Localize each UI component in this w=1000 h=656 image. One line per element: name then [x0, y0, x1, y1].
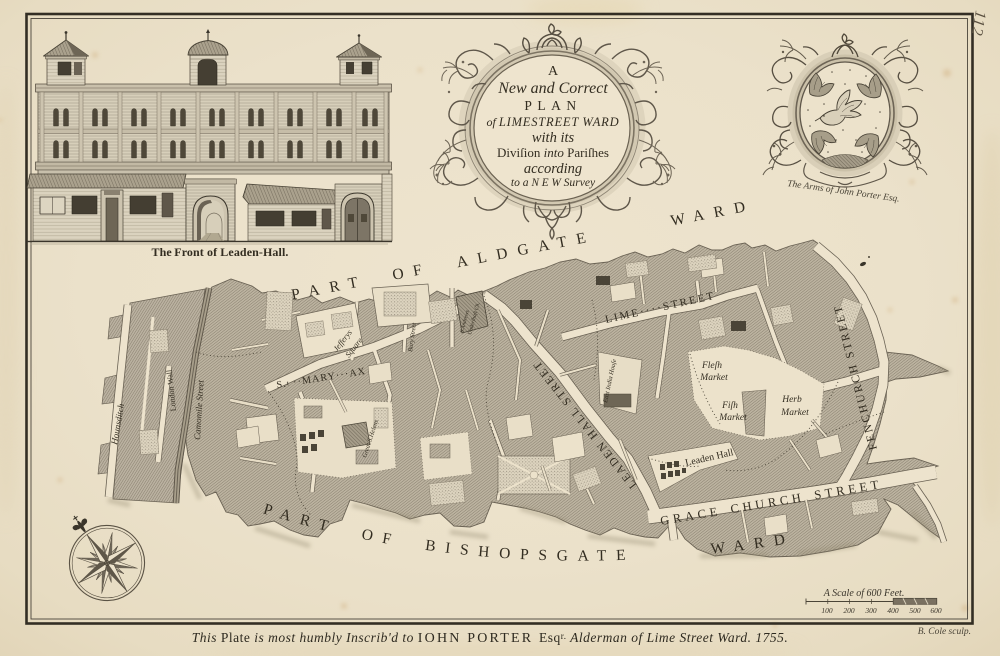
svg-text:to a N E W Survey: to a N E W Survey — [511, 176, 596, 189]
svg-text:Market: Market — [780, 408, 809, 418]
svg-text:500: 500 — [909, 606, 921, 615]
svg-text:400: 400 — [887, 606, 899, 615]
svg-text:with its: with its — [532, 130, 575, 146]
svg-text:200: 200 — [843, 606, 855, 615]
svg-text:Fleſh: Fleſh — [701, 360, 722, 371]
svg-text:A: A — [548, 64, 559, 79]
svg-text:PLAN: PLAN — [524, 98, 581, 113]
svg-text:The Front of Leaden-Hall.: The Front of Leaden-Hall. — [151, 245, 288, 259]
svg-text:Herb: Herb — [781, 395, 802, 405]
svg-text:Market: Market — [699, 373, 728, 383]
svg-text:Market: Market — [718, 413, 747, 423]
svg-text:New and Correct: New and Correct — [497, 80, 608, 97]
svg-text:according: according — [524, 161, 582, 177]
svg-text:Diviſion into Pariſhes: Diviſion into Pariſhes — [497, 145, 609, 160]
svg-text:This Plate is most humbly Insc: This Plate is most humbly Inscrib'd to I… — [192, 630, 789, 646]
svg-text:A Scale of 600 Feet.: A Scale of 600 Feet. — [823, 588, 905, 599]
svg-text:300: 300 — [864, 606, 877, 615]
svg-text:B. Cole sculp.: B. Cole sculp. — [918, 627, 971, 637]
svg-text:100: 100 — [821, 606, 833, 615]
svg-text:600: 600 — [930, 606, 942, 615]
svg-text:Fiſh: Fiſh — [721, 400, 738, 411]
svg-text:of LIMESTREET WARD: of LIMESTREET WARD — [487, 115, 620, 129]
